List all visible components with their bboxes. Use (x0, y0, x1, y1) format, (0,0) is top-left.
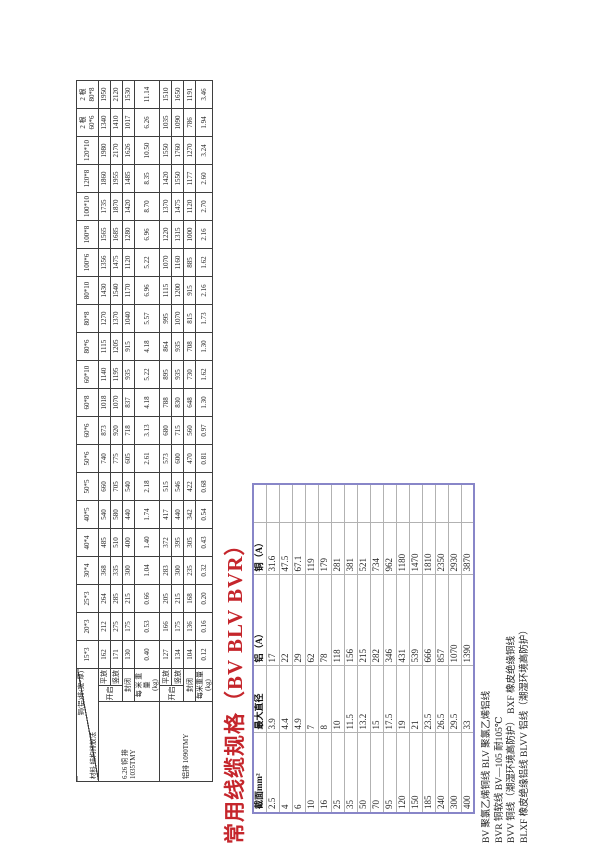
busbar-size-header: 15*3 (77, 641, 99, 669)
busbar-cell: 1070 (111, 389, 123, 417)
busbar-cell: 1420 (123, 193, 135, 221)
cable-row: 16878179 (318, 484, 331, 813)
cable-row: 9517.5346962 (383, 484, 396, 813)
busbar-cell: 162 (99, 641, 111, 669)
busbar-cell: 705 (111, 473, 123, 501)
busbar-cell: 730 (184, 361, 196, 389)
cable-col-header: 铝（A） (253, 575, 266, 666)
busbar-cell: 0.54 (196, 501, 213, 529)
busbar-cell: 837 (123, 389, 135, 417)
busbar-cell: 1270 (184, 137, 196, 165)
diagonal-corner-cell: 铜(铝)排(宽*厚)材料 结构排放法 (77, 669, 99, 782)
busbar-cell: 546 (172, 473, 184, 501)
cable-cell: 50 (357, 733, 370, 813)
cable-row: 120194311180 (396, 484, 409, 813)
cable-row: 2510118281 (331, 484, 344, 813)
cable-cell: 70 (370, 733, 383, 813)
page-title: 常用线缆规格（BV BLV BVR） (219, 533, 249, 844)
busbar-cell: 1626 (123, 137, 135, 165)
cable-row: 3511.5156381 (344, 484, 357, 813)
busbar-cell: 680 (160, 417, 172, 445)
busbar-cell: 0.32 (196, 557, 213, 585)
busbar-cell: 864 (160, 333, 172, 361)
busbar-cell: 815 (184, 305, 196, 333)
cable-cell: 300 (448, 733, 461, 813)
busbar-cell: 300 (123, 557, 135, 585)
busbar-cell: 1120 (123, 249, 135, 277)
busbar-cell: 6.96 (135, 221, 160, 249)
cable-cell: 62 (305, 575, 318, 666)
cable-cell: 15 (370, 666, 383, 733)
busbar-size-header: 50*6 (77, 445, 99, 473)
busbar-cell: 1177 (184, 165, 196, 193)
busbar-cell: 600 (172, 445, 184, 473)
cable-cell: 19 (396, 666, 409, 733)
busbar-cell: 718 (123, 417, 135, 445)
busbar-cell: 5.22 (135, 361, 160, 389)
cable-cell: 4.4 (279, 666, 292, 733)
busbar-cell: 1120 (184, 193, 196, 221)
busbar-cell: 0.12 (196, 641, 213, 669)
cable-cell: 17.5 (383, 666, 396, 733)
busbar-cell: 1860 (99, 165, 111, 193)
busbar-cell: 995 (160, 305, 172, 333)
cable-cell: 150 (409, 733, 422, 813)
busbar-cell: 6.96 (135, 277, 160, 305)
cable-cell (305, 484, 318, 523)
cable-cell: 120 (396, 733, 409, 813)
busbar-cell: 1356 (99, 249, 111, 277)
busbar-cell: 648 (184, 389, 196, 417)
busbar-cell: 283 (160, 557, 172, 585)
busbar-cell: 127 (160, 641, 172, 669)
cable-col-header: 截面mm² (253, 733, 266, 813)
cable-cell: 11.5 (344, 666, 357, 733)
busbar-cell: 1.74 (135, 501, 160, 529)
busbar-cell: 1018 (99, 389, 111, 417)
busbar-cell: 1530 (123, 81, 135, 109)
material-label: 6.26 铜 排 1035TMY (99, 702, 160, 782)
cable-cell: 47.5 (279, 523, 292, 575)
busbar-cell: 915 (184, 277, 196, 305)
busbar-cell: 175 (123, 613, 135, 641)
busbar-cell: 0.53 (135, 613, 160, 641)
cable-cell (279, 484, 292, 523)
busbar-size-header: 80*8 (77, 305, 99, 333)
cable-cell: 4 (279, 733, 292, 813)
busbar-cell: 895 (160, 361, 172, 389)
cable-cell (422, 484, 435, 523)
busbar-cell: 4.18 (135, 333, 160, 361)
cable-cell: 179 (318, 523, 331, 575)
busbar-cell: 715 (172, 417, 184, 445)
busbar-cell: 1.04 (135, 557, 160, 585)
busbar-cell: 342 (184, 501, 196, 529)
busbar-cell: 1550 (160, 137, 172, 165)
cable-cell (448, 484, 461, 523)
footnote-line: BVR 铜软线 BV—105 耐105℃ (494, 625, 507, 843)
busbar-cell: 1420 (160, 165, 172, 193)
cable-cell: 21 (409, 666, 422, 733)
busbar-cell: 0.97 (196, 417, 213, 445)
page: 铜(铝)排(宽*厚)材料 结构排放法15*320*325*330*440*440… (0, 0, 600, 850)
busbar-cell: 6.26 (135, 109, 160, 137)
cable-cell: 22 (279, 575, 292, 666)
busbar-cell: 0.81 (196, 445, 213, 473)
cable-cell: 26.5 (435, 666, 448, 733)
busbar-cell: 580 (111, 501, 123, 529)
cable-cell: 3870 (461, 523, 474, 575)
busbar-cell: 212 (99, 613, 111, 641)
busbar-size-header: 2 根 60*6 (77, 109, 99, 137)
busbar-cell: 235 (184, 557, 196, 585)
busbar-cell: 1475 (111, 249, 123, 277)
cable-cell: 7 (305, 666, 318, 733)
cable-row: 18523.56661810 (422, 484, 435, 813)
busbar-cell: 1070 (172, 305, 184, 333)
cable-cell: 2350 (435, 523, 448, 575)
busbar-cell: 5.22 (135, 249, 160, 277)
busbar-size-header: 120*10 (77, 137, 99, 165)
busbar-cell: 0.43 (196, 529, 213, 557)
cable-cell: 119 (305, 523, 318, 575)
busbar-size-header: 60*10 (77, 361, 99, 389)
busbar-size-header: 30*4 (77, 557, 99, 585)
cable-cell: 16 (318, 733, 331, 813)
row-label: 平放 (160, 669, 172, 686)
cable-cell: 1180 (396, 523, 409, 575)
busbar-size-header: 60*8 (77, 389, 99, 417)
busbar-cell: 573 (160, 445, 172, 473)
cable-row: 64.92967.1 (292, 484, 305, 813)
row-label: 竖放 (111, 669, 123, 686)
busbar-cell: 1340 (99, 109, 111, 137)
busbar-cell: 1115 (99, 333, 111, 361)
busbar-cell: 3.13 (135, 417, 160, 445)
cable-cell (461, 484, 474, 523)
busbar-cell: 1191 (184, 81, 196, 109)
cable-cell: 240 (435, 733, 448, 813)
busbar-cell: 166 (160, 613, 172, 641)
busbar-size-header: 120*8 (77, 165, 99, 193)
cable-cell: 521 (357, 523, 370, 575)
open-install-label: 开启 (160, 686, 184, 702)
cable-cell: 17 (266, 575, 279, 666)
busbar-cell: 130 (123, 641, 135, 669)
busbar-cell: 1485 (123, 165, 135, 193)
cable-cell: 29.5 (448, 666, 461, 733)
cable-cell: 156 (344, 575, 357, 666)
busbar-cell: 2.18 (135, 473, 160, 501)
busbar-cell: 1115 (160, 277, 172, 305)
cable-cell: 6 (292, 733, 305, 813)
cable-cell (383, 484, 396, 523)
busbar-cell: 1017 (123, 109, 135, 137)
busbar-size-header: 80*6 (77, 333, 99, 361)
busbar-cell: 1280 (123, 221, 135, 249)
cable-cell: 31.6 (266, 523, 279, 575)
rotated-page-content: 铜(铝)排(宽*厚)材料 结构排放法15*320*325*330*440*440… (0, 0, 600, 850)
busbar-cell: 915 (123, 333, 135, 361)
busbar-cell: 1510 (160, 81, 172, 109)
cable-cell (318, 484, 331, 523)
cable-cell (357, 484, 370, 523)
cable-cell: 4.9 (292, 666, 305, 733)
busbar-cell: 215 (123, 585, 135, 613)
busbar-cell: 8.35 (135, 165, 160, 193)
busbar-cell: 0.40 (135, 641, 160, 669)
busbar-cell: 4.18 (135, 389, 160, 417)
busbar-cell: 136 (184, 613, 196, 641)
cable-cell: 381 (344, 523, 357, 575)
busbar-cell: 1430 (99, 277, 111, 305)
busbar-cell: 830 (172, 389, 184, 417)
busbar-cell: 2.61 (135, 445, 160, 473)
cable-cell: 13.2 (357, 666, 370, 733)
busbar-cell: 205 (160, 585, 172, 613)
busbar-cell: 275 (111, 613, 123, 641)
busbar-cell: 1195 (111, 361, 123, 389)
busbar-cell: 417 (160, 501, 172, 529)
busbar-cell: 1410 (111, 109, 123, 137)
cable-cell: 282 (370, 575, 383, 666)
busbar-cell: 1950 (99, 81, 111, 109)
busbar-size-header: 40*5 (77, 501, 99, 529)
row-label: 封闭 (184, 669, 196, 702)
cable-cell: 431 (396, 575, 409, 666)
busbar-cell: 515 (160, 473, 172, 501)
busbar-cell: 1090 (172, 109, 184, 137)
busbar-cell: 470 (184, 445, 196, 473)
cable-cell (266, 484, 279, 523)
busbar-cell: 215 (172, 585, 184, 613)
cable-cell: 35 (344, 733, 357, 813)
cable-cell: 10 (331, 666, 344, 733)
busbar-size-header: 60*6 (77, 417, 99, 445)
cable-cell (331, 484, 344, 523)
busbar-cell: 1000 (184, 221, 196, 249)
cable-cell: 857 (435, 575, 448, 666)
busbar-cell: 1140 (99, 361, 111, 389)
busbar-cell: 775 (111, 445, 123, 473)
busbar-cell: 11.14 (135, 81, 160, 109)
busbar-cell: 560 (184, 417, 196, 445)
cable-cell: 346 (383, 575, 396, 666)
busbar-cell: 1040 (123, 305, 135, 333)
busbar-cell: 1475 (172, 193, 184, 221)
open-install-label: 开启 (99, 686, 123, 702)
cable-cell (292, 484, 305, 523)
cable-cell: 185 (422, 733, 435, 813)
row-label: 封闭 (123, 669, 135, 702)
busbar-cell: 1070 (160, 249, 172, 277)
cable-cell: 1470 (409, 523, 422, 575)
busbar-cell: 885 (184, 249, 196, 277)
busbar-cell: 335 (111, 557, 123, 585)
busbar-cell: 1035 (160, 109, 172, 137)
busbar-cell: 440 (123, 501, 135, 529)
busbar-size-header: 2 根 80*8 (77, 81, 99, 109)
busbar-cell: 1270 (99, 305, 111, 333)
busbar-cell: 2.16 (196, 277, 213, 305)
busbar-cell: 171 (111, 641, 123, 669)
busbar-cell: 104 (184, 641, 196, 669)
busbar-size-header: 100*8 (77, 221, 99, 249)
busbar-cell: 1.30 (196, 389, 213, 417)
busbar-size-header: 40*4 (77, 529, 99, 557)
busbar-cell: 740 (99, 445, 111, 473)
footnote-line: BLXF 橡皮绝缘铝线 BLVV 铝线（潮湿环境高防护） (519, 625, 532, 843)
busbar-cell: 1.62 (196, 361, 213, 389)
busbar-cell: 788 (160, 389, 172, 417)
busbar-cell: 1370 (160, 193, 172, 221)
cable-row: 10762119 (305, 484, 318, 813)
material-label: 铝排 1090TMY (160, 702, 213, 782)
busbar-cell: 920 (111, 417, 123, 445)
cable-cell (344, 484, 357, 523)
cable-cell: 734 (370, 523, 383, 575)
cable-cell: 400 (461, 733, 474, 813)
cable-spec-table: 截面mm²最大直径铝（A）铜（A）2.53.91731.644.42247.56… (252, 483, 475, 814)
cable-cell: 962 (383, 523, 396, 575)
busbar-cell: 1870 (111, 193, 123, 221)
busbar-cell: 372 (160, 529, 172, 557)
busbar-cell: 2120 (111, 81, 123, 109)
row-label: 竖放 (172, 669, 184, 686)
busbar-cell: 708 (184, 333, 196, 361)
cable-cell: 23.5 (422, 666, 435, 733)
busbar-size-header: 20*3 (77, 613, 99, 641)
busbar-cell: 134 (172, 641, 184, 669)
busbar-size-header: 50*5 (77, 473, 99, 501)
busbar-cell: 1735 (99, 193, 111, 221)
busbar-cell: 0.66 (135, 585, 160, 613)
busbar-cell: 400 (123, 529, 135, 557)
busbar-cell: 0.16 (196, 613, 213, 641)
cable-col-header: 铜（A） (253, 523, 266, 575)
cable-row: 30029.510702930 (448, 484, 461, 813)
busbar-cell: 395 (172, 529, 184, 557)
busbar-cell: 1650 (172, 81, 184, 109)
cable-cell: 33 (461, 666, 474, 733)
corner-column-caption: 铜(铝)排(宽*厚) (78, 671, 85, 715)
busbar-cell: 285 (111, 585, 123, 613)
cable-cell: 1810 (422, 523, 435, 575)
busbar-cell: 305 (184, 529, 196, 557)
busbar-cell: 1315 (172, 221, 184, 249)
busbar-cell: 660 (99, 473, 111, 501)
cable-row: 150215391470 (409, 484, 422, 813)
busbar-cell: 935 (123, 361, 135, 389)
row-label: 每米重量(kg) (196, 669, 213, 702)
cable-cell: 95 (383, 733, 396, 813)
busbar-cell: 1685 (111, 221, 123, 249)
busbar-cell: 1160 (172, 249, 184, 277)
busbar-cell: 10.50 (135, 137, 160, 165)
busbar-cell: 935 (172, 333, 184, 361)
busbar-cell: 1370 (111, 305, 123, 333)
cable-row: 7015282734 (370, 484, 383, 813)
busbar-rating-table: 铜(铝)排(宽*厚)材料 结构排放法15*320*325*330*440*440… (76, 80, 213, 782)
busbar-size-header: 80*10 (77, 277, 99, 305)
busbar-size-header: 100*10 (77, 193, 99, 221)
busbar-cell: 1955 (111, 165, 123, 193)
busbar-cell: 1.62 (196, 249, 213, 277)
busbar-cell: 605 (123, 445, 135, 473)
footnote-line: BVV 铜线（潮湿环境高防护） BXF 橡皮绝缘铜线 (506, 625, 519, 843)
cable-cell (396, 484, 409, 523)
cable-row: 2.53.91731.6 (266, 484, 279, 813)
busbar-cell: 1220 (160, 221, 172, 249)
busbar-cell: 873 (99, 417, 111, 445)
cable-cell: 8 (318, 666, 331, 733)
busbar-cell: 1550 (172, 165, 184, 193)
busbar-cell: 168 (184, 585, 196, 613)
busbar-cell: 422 (184, 473, 196, 501)
row-label: 每 米 重 量 (kg) (135, 669, 160, 702)
busbar-cell: 1200 (172, 277, 184, 305)
busbar-cell: 935 (172, 361, 184, 389)
cable-cell: 281 (331, 523, 344, 575)
busbar-cell: 2.60 (196, 165, 213, 193)
busbar-cell: 2.70 (196, 193, 213, 221)
cable-cell: 29 (292, 575, 305, 666)
busbar-cell: 786 (184, 109, 196, 137)
cable-cell (409, 484, 422, 523)
cable-cell (435, 484, 448, 523)
busbar-size-header: 100*6 (77, 249, 99, 277)
busbar-cell: 5.57 (135, 305, 160, 333)
busbar-cell: 0.20 (196, 585, 213, 613)
cable-cell: 10 (305, 733, 318, 813)
cable-col-header: 最大直径 (253, 666, 266, 733)
busbar-cell: 264 (99, 585, 111, 613)
cable-row: 5013.2215521 (357, 484, 370, 813)
busbar-cell: 1980 (99, 137, 111, 165)
busbar-cell: 2170 (111, 137, 123, 165)
busbar-cell: 300 (172, 557, 184, 585)
busbar-cell: 540 (99, 501, 111, 529)
cable-cell: 3.9 (266, 666, 279, 733)
cable-cell: 67.1 (292, 523, 305, 575)
cable-cell (370, 484, 383, 523)
cable-row: 4003313903870 (461, 484, 474, 813)
cable-cell: 118 (331, 575, 344, 666)
busbar-cell: 1.30 (196, 333, 213, 361)
busbar-cell: 0.68 (196, 473, 213, 501)
cable-row: 24026.58572350 (435, 484, 448, 813)
busbar-cell: 1540 (111, 277, 123, 305)
busbar-cell: 510 (111, 529, 123, 557)
cable-row: 44.42247.5 (279, 484, 292, 813)
busbar-cell: 1205 (111, 333, 123, 361)
cable-cell: 666 (422, 575, 435, 666)
cable-cell: 2.5 (266, 733, 279, 813)
cable-cell: 539 (409, 575, 422, 666)
busbar-cell: 440 (172, 501, 184, 529)
footnotes: BV 聚氯乙烯铜线 BLV 聚氯乙烯铝线 BVR 铜软线 BV—105 耐105… (481, 625, 531, 843)
busbar-cell: 175 (172, 613, 184, 641)
busbar-cell: 3.46 (196, 81, 213, 109)
busbar-cell: 1170 (123, 277, 135, 305)
busbar-size-header: 25*3 (77, 585, 99, 613)
busbar-cell: 368 (99, 557, 111, 585)
busbar-cell: 8.70 (135, 193, 160, 221)
busbar-cell: 3.24 (196, 137, 213, 165)
busbar-cell: 1.73 (196, 305, 213, 333)
busbar-cell: 1.40 (135, 529, 160, 557)
footnote-line: BV 聚氯乙烯铜线 BLV 聚氯乙烯铝线 (481, 625, 494, 843)
